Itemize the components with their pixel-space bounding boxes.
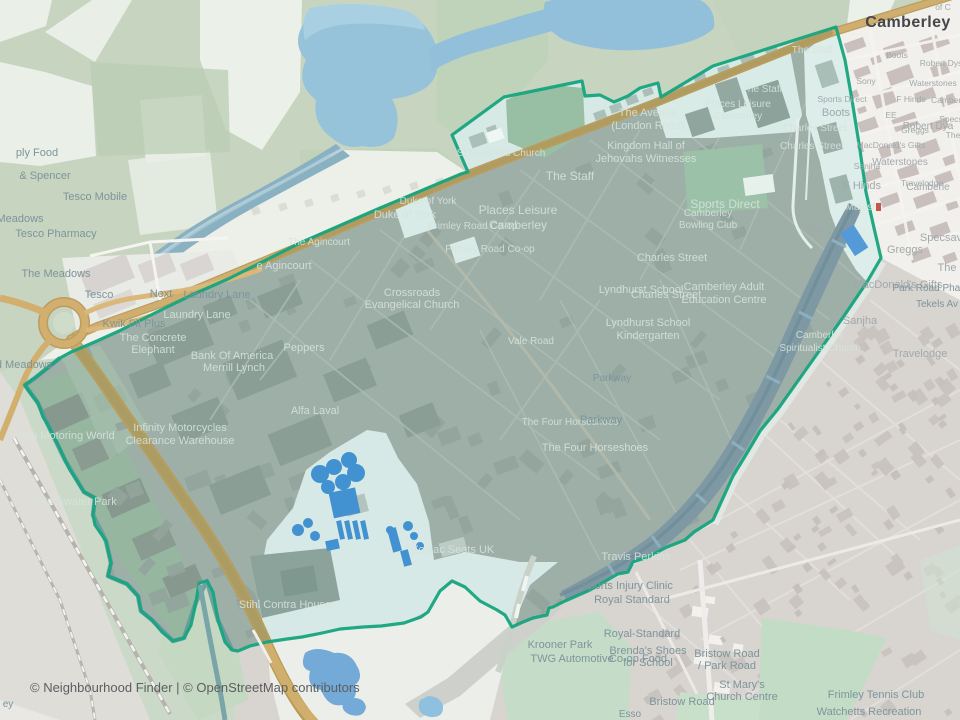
svg-text:Charles Street: Charles Street [780, 141, 844, 152]
svg-text:Sony: Sony [856, 76, 876, 86]
svg-text:Stihl Contra House: Stihl Contra House [239, 599, 331, 611]
svg-text:Frimley Road Co-op: Frimley Road Co-op [445, 244, 535, 255]
svg-text:Camberley: Camberley [796, 330, 844, 341]
svg-text:The Avenue: The Avenue [619, 107, 678, 119]
svg-text:Elephant: Elephant [131, 344, 174, 356]
svg-text:Peppers: Peppers [284, 342, 325, 354]
svg-text:Waterstones: Waterstones [872, 157, 928, 168]
svg-text:Laundry Lane: Laundry Lane [163, 309, 230, 321]
svg-text:Charles Street: Charles Street [631, 289, 701, 301]
svg-text:(London Road): (London Road) [611, 120, 684, 132]
svg-text:Meadows: Meadows [0, 213, 44, 225]
svg-text:Boots: Boots [822, 107, 851, 119]
svg-text:& Spencer: & Spencer [19, 170, 71, 182]
svg-text:e Agincourt: e Agincourt [256, 260, 311, 272]
svg-text:Bristow Road: Bristow Road [649, 696, 714, 708]
svg-text:Clearance Warehouse: Clearance Warehouse [125, 435, 234, 447]
svg-text:d Meadows: d Meadows [0, 359, 53, 371]
svg-text:Co-op Food: Co-op Food [609, 653, 667, 665]
svg-text:EE: EE [811, 226, 826, 238]
svg-text:/ Park Road: / Park Road [698, 660, 756, 672]
svg-text:Places Leisure: Places Leisure [479, 203, 558, 217]
svg-text:Big Motoring World: Big Motoring World [21, 430, 114, 442]
svg-text:TWG Automotive: TWG Automotive [530, 653, 613, 665]
svg-text:Greggs: Greggs [887, 244, 924, 256]
svg-text:of C: of C [935, 2, 951, 12]
svg-text:Tekels Av: Tekels Av [916, 299, 958, 310]
svg-text:Krooner Park: Krooner Park [528, 639, 593, 651]
svg-text:Charles Street: Charles Street [783, 123, 847, 134]
svg-text:Camberley: Camberley [489, 218, 547, 232]
svg-text:Specsav: Specsav [920, 232, 960, 244]
svg-text:Watchetts Recreation: Watchetts Recreation [817, 706, 922, 718]
svg-text:Robert Dya: Robert Dya [903, 121, 954, 132]
svg-text:Bank Of America: Bank Of America [191, 350, 274, 362]
svg-text:© Neighbourhood Finder | © Ope: © Neighbourhood Finder | © OpenStreetMap… [30, 680, 360, 695]
svg-text:Camberley: Camberley [865, 14, 950, 31]
svg-text:Charles Street: Charles Street [637, 252, 707, 264]
svg-text:Travis Perkins: Travis Perkins [601, 551, 671, 563]
svg-text:Frimley Tennis Club: Frimley Tennis Club [828, 689, 924, 701]
svg-text:The Concrete: The Concrete [120, 332, 187, 344]
svg-text:Sports Injury Clinic: Sports Injury Clinic [581, 580, 673, 592]
svg-text:Duke of York: Duke of York [374, 209, 437, 221]
svg-text:Park Road Phar: Park Road Phar [892, 283, 960, 294]
svg-text:Bowling Club: Bowling Club [679, 220, 738, 231]
svg-text:St Michael's Church: St Michael's Church [457, 148, 546, 159]
svg-text:Evangelical Church: Evangelical Church [365, 299, 460, 311]
svg-text:Parkway: Parkway [580, 414, 623, 426]
svg-text:Zodiac Seats UK: Zodiac Seats UK [412, 544, 495, 556]
svg-text:Duke of York: Duke of York [400, 196, 458, 207]
svg-text:Lyndhurst School: Lyndhurst School [606, 317, 691, 329]
svg-text:Kingdom Hall of: Kingdom Hall of [607, 140, 686, 152]
svg-text:Laundry Lane: Laundry Lane [183, 289, 250, 301]
svg-text:The Staff: The Staff [546, 169, 595, 183]
svg-text:Camberle: Camberle [906, 182, 950, 193]
svg-text:Jehovahs Witnesses: Jehovahs Witnesses [596, 153, 697, 165]
svg-text:The Staff: The Staff [742, 84, 783, 95]
svg-text:Tesco Mobile: Tesco Mobile [63, 191, 127, 203]
svg-text:Places Leisure: Places Leisure [705, 99, 771, 110]
svg-text:Sports Direct: Sports Direct [817, 94, 867, 104]
svg-text:The: The [938, 262, 957, 274]
svg-text:Kindergarten: Kindergarten [617, 330, 680, 342]
svg-text:Alfa Laval: Alfa Laval [291, 405, 339, 417]
svg-text:Royal-Standard: Royal-Standard [604, 628, 680, 640]
svg-text:Church Centre: Church Centre [706, 691, 778, 703]
svg-text:Parkway: Parkway [593, 373, 631, 384]
svg-text:Merrill Lynch: Merrill Lynch [203, 362, 265, 374]
svg-text:Vale Road: Vale Road [508, 336, 554, 347]
svg-text:MacDonald's Gifts: MacDonald's Gifts [857, 140, 926, 150]
svg-text:Travelodge: Travelodge [893, 348, 948, 360]
svg-text:Camberl: Camberl [931, 95, 960, 105]
svg-text:Next: Next [150, 288, 173, 300]
svg-text:Royal Standard: Royal Standard [594, 594, 670, 606]
svg-text:ply Food: ply Food [16, 147, 58, 159]
svg-text:Sanjha: Sanjha [843, 315, 878, 327]
svg-text:Waterstones: Waterstones [909, 78, 956, 88]
svg-text:Blackwater Park: Blackwater Park [37, 496, 117, 508]
svg-text:Esso: Esso [619, 709, 642, 720]
svg-text:Tesco Pharmacy: Tesco Pharmacy [15, 228, 97, 240]
svg-text:Bristow Road: Bristow Road [694, 648, 759, 660]
svg-text:The Four Horseshoes: The Four Horseshoes [542, 442, 649, 454]
svg-text:Spiritualist Church: Spiritualist Church [779, 343, 860, 354]
svg-text:Kwik Fit Plus: Kwik Fit Plus [103, 318, 166, 330]
svg-text:Crossroads: Crossroads [384, 287, 441, 299]
svg-text:The Staff: The Staff [792, 45, 833, 56]
svg-text:Infinity Motorcycles: Infinity Motorcycles [133, 422, 227, 434]
svg-text:EE: EE [885, 110, 897, 120]
svg-text:The Agincourt: The Agincourt [288, 237, 350, 248]
svg-text:St Mary's: St Mary's [719, 679, 765, 691]
svg-text:Robert Dys: Robert Dys [920, 58, 960, 68]
svg-text:Boots: Boots [886, 50, 908, 60]
svg-text:Camberley: Camberley [714, 111, 762, 122]
svg-text:ey: ey [3, 699, 14, 710]
svg-text:The Meadows: The Meadows [21, 268, 91, 280]
svg-text:F Hinds: F Hinds [896, 94, 925, 104]
svg-text:Tesco: Tesco [85, 289, 114, 301]
svg-text:F Hinds: F Hinds [843, 180, 881, 192]
svg-text:Sports Direct: Sports Direct [690, 197, 760, 211]
